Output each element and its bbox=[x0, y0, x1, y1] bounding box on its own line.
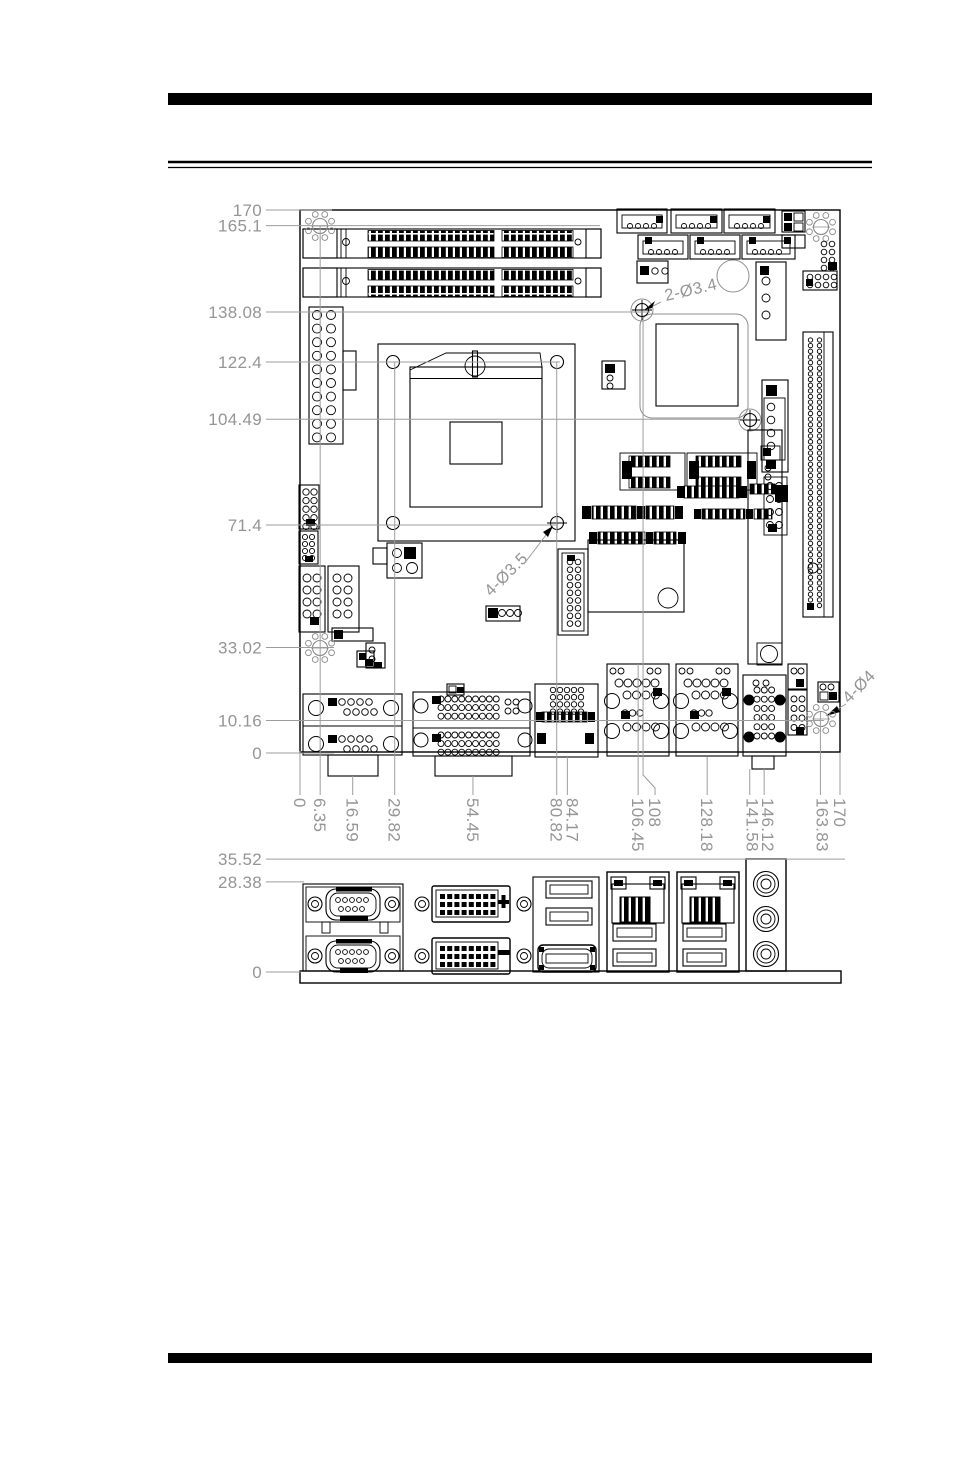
dimension-lines: 170165.1138.08122.4104.4971.433.0210.160… bbox=[208, 201, 849, 982]
hole-annotation-mounting: 4-Ø4 bbox=[839, 667, 879, 707]
footprint-circles bbox=[309, 694, 738, 752]
dim-label-bottom: 0 bbox=[290, 798, 309, 808]
dvi-pins bbox=[440, 894, 495, 967]
dim-label-left: 0 bbox=[252, 744, 262, 763]
cpu-area-parts bbox=[373, 361, 625, 695]
dimm-slot-1 bbox=[303, 229, 601, 258]
io-base-plate bbox=[300, 971, 841, 983]
cpu-hole-bl bbox=[387, 517, 400, 530]
dim-label-left: 138.08 bbox=[208, 303, 262, 322]
dim-label-left: 122.4 bbox=[218, 353, 262, 372]
dim-label-io: 0 bbox=[252, 963, 262, 982]
dim-label-bottom: 106.45 bbox=[628, 798, 647, 852]
io-panel-view bbox=[300, 859, 841, 983]
io-dvi-ports bbox=[415, 886, 531, 974]
serial-port-footprint bbox=[303, 694, 402, 776]
expansion-card-connectors bbox=[582, 453, 772, 544]
io-usb-esata-stack bbox=[533, 877, 599, 972]
hole-annotation-cpu: 4-Ø3.5 bbox=[481, 549, 532, 600]
pin-grids bbox=[302, 224, 836, 964]
battery bbox=[717, 260, 749, 292]
dim-label-bottom: 54.45 bbox=[463, 798, 482, 842]
mounting-hole bbox=[807, 213, 836, 242]
dim-label-left: 71.4 bbox=[228, 516, 262, 535]
manual-page: 2-Ø3.4 4-Ø3.5 4-Ø4 170165.1138.08122.410… bbox=[0, 0, 954, 1474]
atx-power-connector bbox=[309, 307, 356, 444]
dimm-slot-2 bbox=[303, 268, 601, 297]
cpu-die bbox=[450, 422, 502, 464]
bottom-right-headers bbox=[788, 664, 839, 735]
dim-label-left: 165.1 bbox=[218, 217, 262, 236]
dim-label-left: 10.16 bbox=[218, 712, 262, 731]
dim-label-io: 28.38 bbox=[218, 873, 262, 892]
bottom-rule-bar bbox=[168, 1353, 872, 1363]
dim-label-bottom: 146.12 bbox=[758, 798, 777, 852]
top-rule-bar bbox=[168, 93, 872, 105]
board-dimension-diagram: 2-Ø3.4 4-Ø3.5 4-Ø4 170165.1138.08122.410… bbox=[0, 0, 954, 1474]
left-pin-headers bbox=[299, 485, 385, 668]
dim-label-left: 33.02 bbox=[218, 639, 262, 658]
dim-label-io: 35.52 bbox=[218, 850, 262, 869]
dim-label-bottom: 170 bbox=[830, 798, 849, 827]
cpu-socket bbox=[378, 344, 575, 541]
dim-label-bottom: 108 bbox=[645, 798, 664, 827]
dim-label-bottom: 84.17 bbox=[562, 798, 581, 842]
dim-label-bottom: 6.35 bbox=[310, 798, 329, 832]
io-lan-usb-1 bbox=[607, 872, 669, 972]
mounting-hole bbox=[807, 705, 836, 734]
dim-label-bottom: 128.18 bbox=[697, 798, 716, 852]
hole-annotation-chipset: 2-Ø3.4 bbox=[663, 275, 719, 305]
dim-label-left: 104.49 bbox=[208, 410, 262, 429]
dim-label-bottom: 163.83 bbox=[812, 798, 831, 852]
dim-label-bottom: 16.59 bbox=[343, 798, 362, 842]
dim-label-bottom: 29.82 bbox=[385, 798, 404, 842]
audio-jack-footprint bbox=[743, 675, 786, 769]
io-lan-usb-2 bbox=[677, 872, 739, 972]
chipset bbox=[631, 299, 761, 431]
io-audio-jacks bbox=[746, 859, 786, 971]
